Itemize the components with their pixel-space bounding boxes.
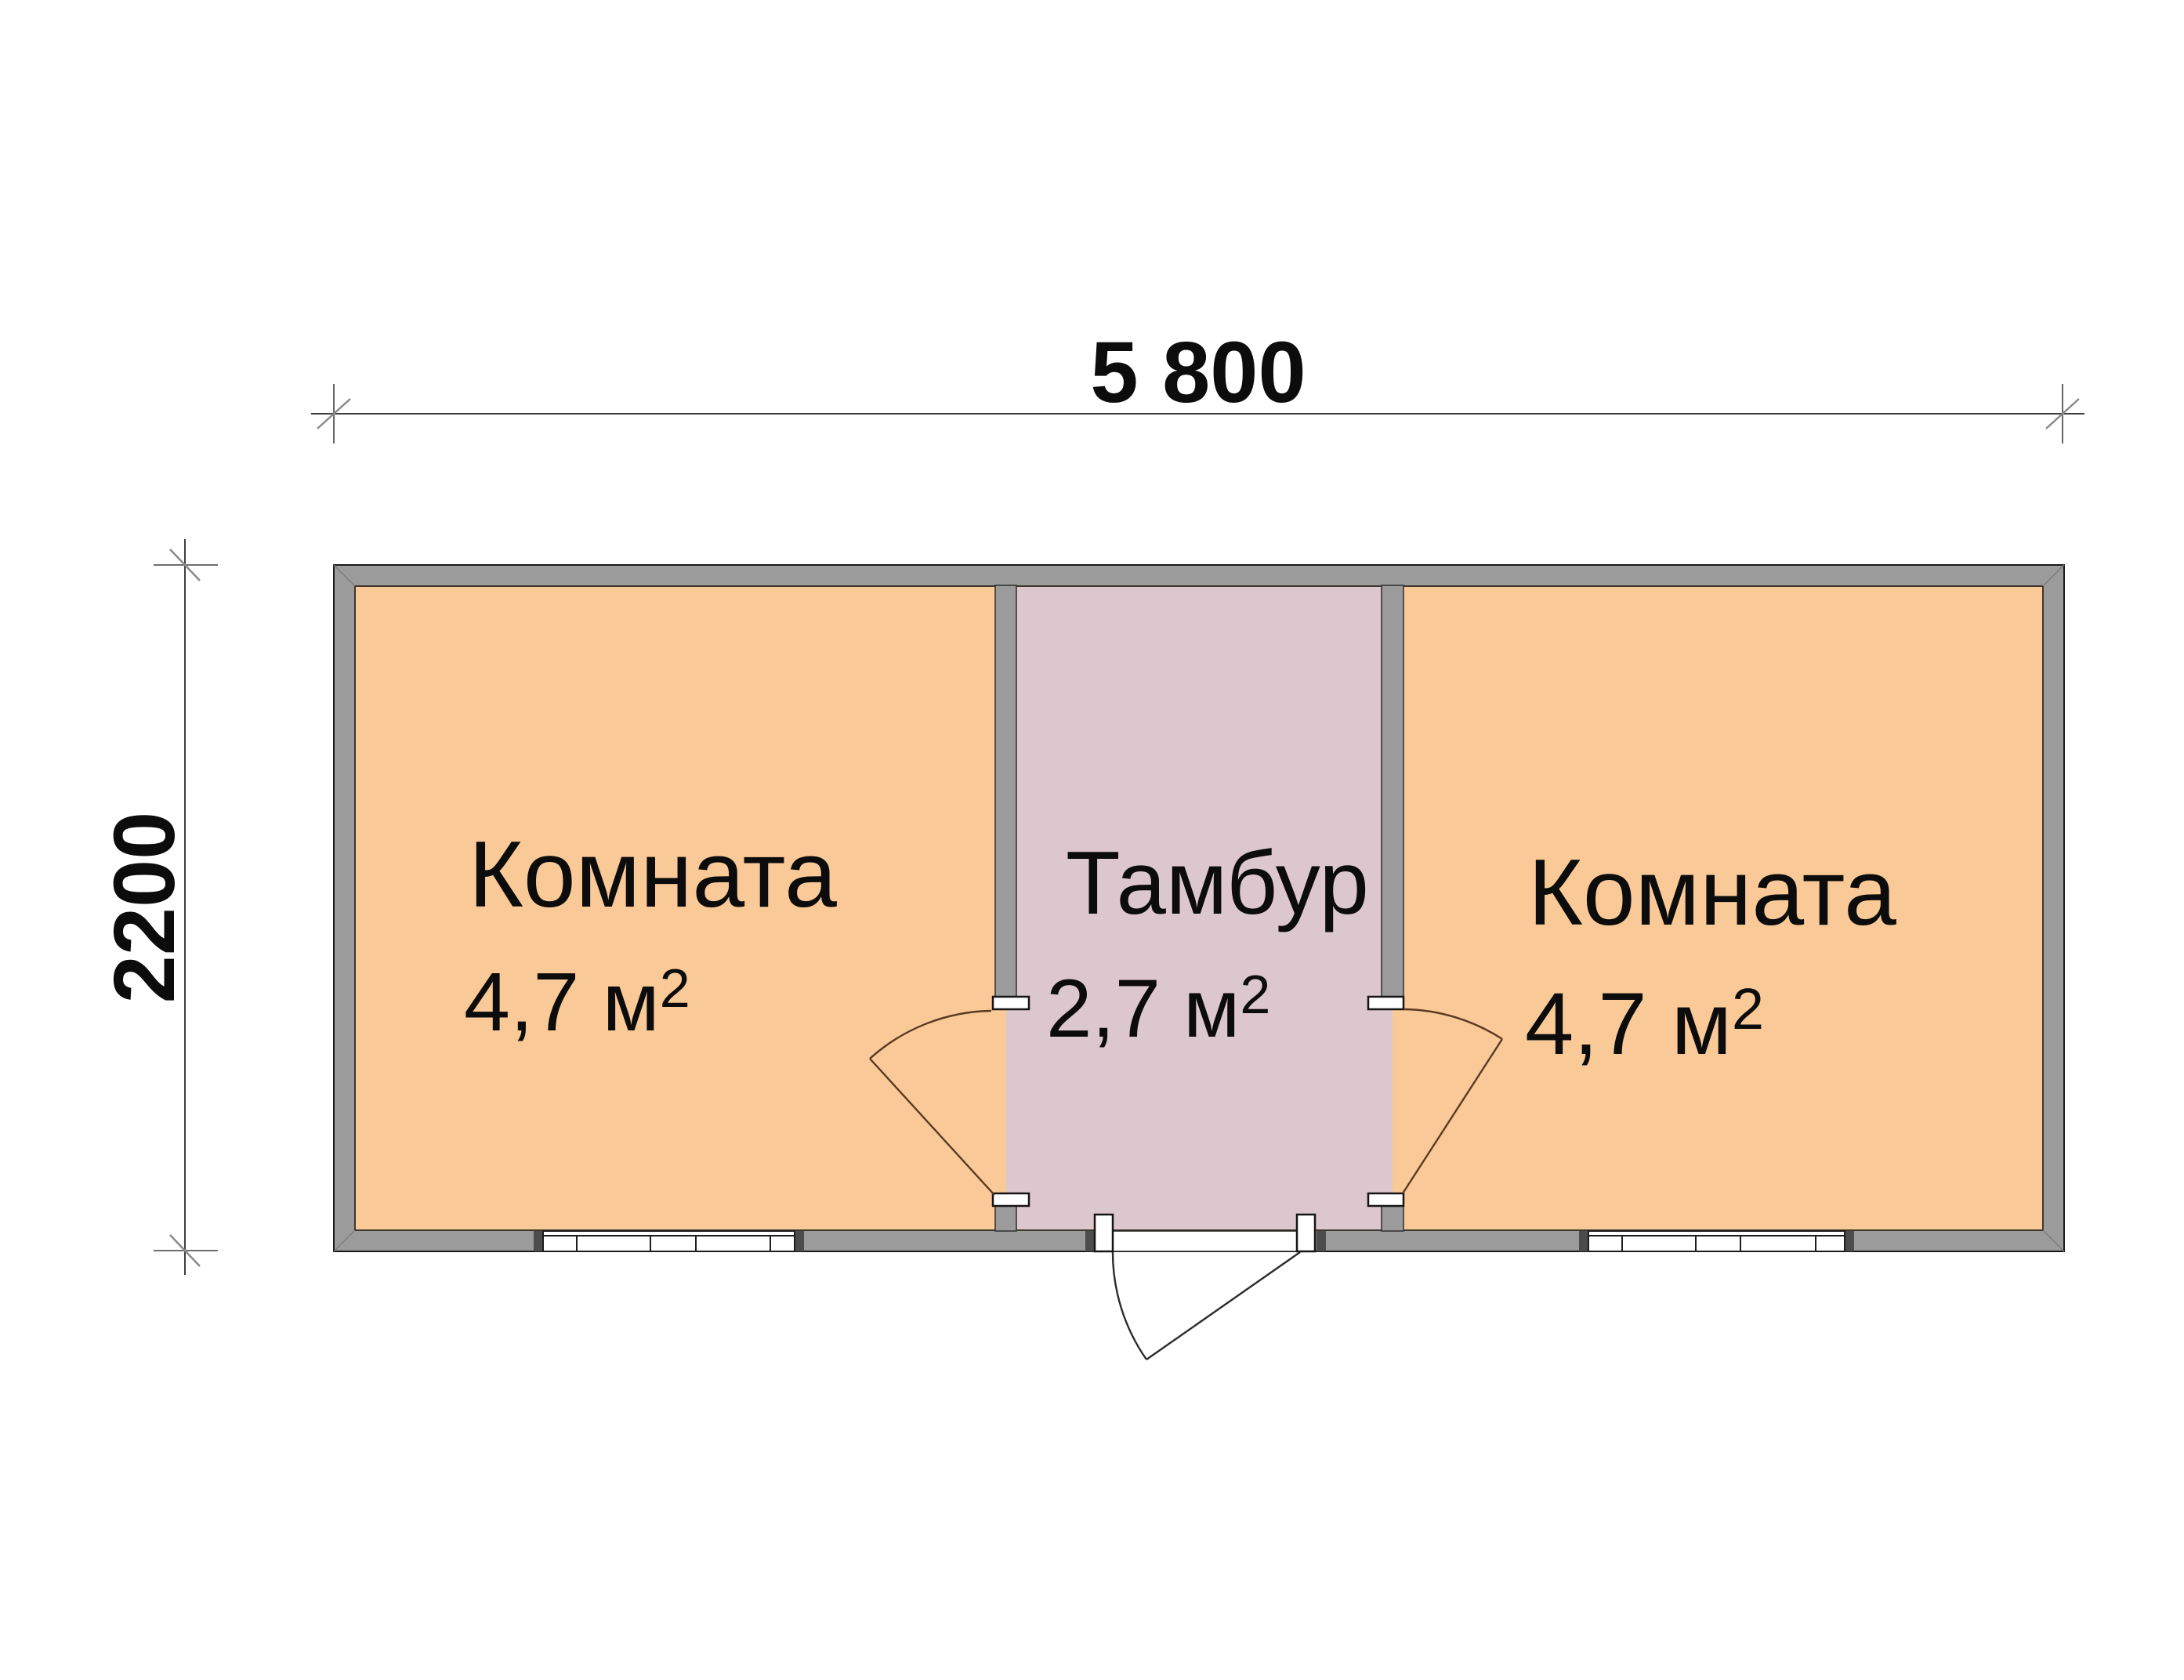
vestibule-name: Тамбур [1066, 834, 1369, 933]
room-left-name: Комната [469, 822, 837, 927]
room-right-area: 4,7 м2 [1525, 975, 1764, 1073]
room-left-area: 4,7 м2 [464, 956, 690, 1048]
window-left [534, 1231, 804, 1251]
room-left-area-value: 4,7 м [464, 956, 660, 1048]
vestibule-area: 2,7 м2 [1046, 963, 1270, 1055]
room-right-name: Комната [1528, 840, 1896, 945]
room-left-area-sup: 2 [660, 958, 690, 1019]
vestibule-area-value: 2,7 м [1046, 963, 1240, 1055]
window-right [1579, 1231, 1854, 1251]
vestibule-area-sup: 2 [1240, 964, 1270, 1025]
room-right-area-value: 4,7 м [1525, 975, 1732, 1073]
dimension-height-label: 2200 [96, 812, 193, 1004]
entrance-opening [1085, 1231, 1326, 1251]
room-right-area-sup: 2 [1732, 976, 1764, 1041]
floor-plan-canvas: 5 800 2200 Комната 4,7 м2 Тамбур 2,7 м2 … [0, 0, 2184, 1680]
dimension-width-label: 5 800 [1090, 324, 1306, 421]
